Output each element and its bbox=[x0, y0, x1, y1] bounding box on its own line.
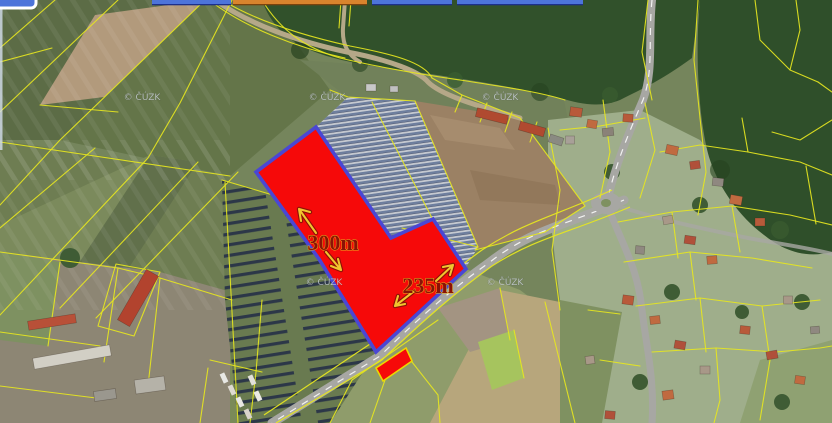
copyright-watermark: © ČÚZK bbox=[124, 91, 162, 103]
toolbar-button-fragment-5-edge bbox=[457, 4, 583, 5]
copyright-watermark: © ČÚZK bbox=[309, 91, 347, 103]
map-canvas[interactable]: © ČÚZK © ČÚZK © ČÚZK © ČÚZK © ČÚZK 300m … bbox=[0, 0, 832, 423]
toolbar-button-fragment-4-edge bbox=[372, 4, 452, 5]
window-edge-fragment bbox=[0, 0, 3, 150]
copyright-watermark: © ČÚZK bbox=[306, 276, 344, 288]
toolbar-button-fragment-2-edge bbox=[152, 4, 231, 5]
dimension-label-300m: 300m bbox=[307, 230, 358, 255]
dimension-label-235m: 235m bbox=[402, 273, 453, 298]
copyright-watermark: © ČÚZK bbox=[487, 276, 525, 288]
map-viewer: © ČÚZK © ČÚZK © ČÚZK © ČÚZK © ČÚZK 300m … bbox=[0, 0, 832, 423]
copyright-watermark: © ČÚZK bbox=[482, 91, 520, 103]
toolbar-button-fragment-3-edge bbox=[233, 4, 367, 5]
toolbar-button-fragment-1[interactable] bbox=[0, 0, 36, 8]
